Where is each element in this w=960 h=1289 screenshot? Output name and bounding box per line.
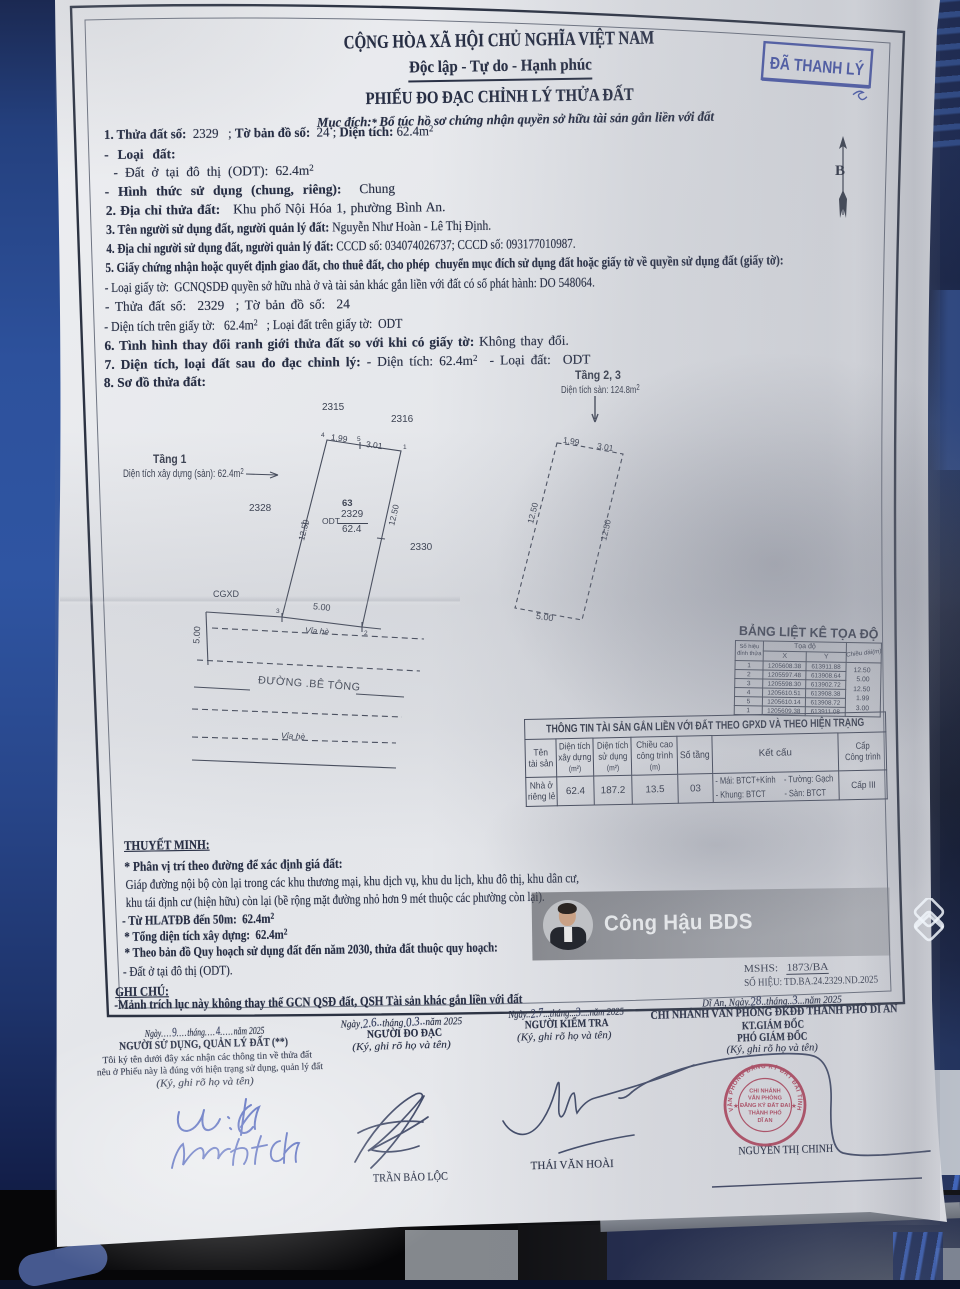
svg-text:CHI NHÁNH: CHI NHÁNH [749, 1088, 780, 1095]
svg-text:VĂN PHÒNG: VĂN PHÒNG [748, 1094, 782, 1102]
svg-text:ĐÃ THANH LÝ: ĐÃ THANH LÝ [769, 53, 865, 80]
svg-text:ĐĂNG KÝ ĐẤT ĐAI: ĐĂNG KÝ ĐẤT ĐAI [740, 1102, 790, 1109]
svg-text:★: ★ [791, 1102, 797, 1110]
svg-text:THÀNH PHỐ: THÀNH PHỐ [748, 1110, 782, 1117]
svg-text:DĨ AN: DĨ AN [757, 1117, 772, 1124]
svg-text:★: ★ [733, 1102, 739, 1110]
